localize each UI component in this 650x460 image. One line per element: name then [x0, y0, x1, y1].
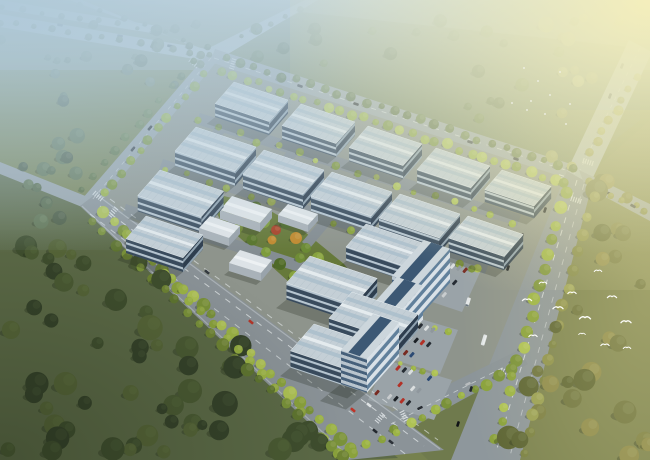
vignette-bottomleft [0, 230, 340, 460]
aerial-render-canvas [0, 0, 650, 460]
atmosphere-haze-layer [0, 0, 650, 460]
warm-wash-right [460, 110, 650, 460]
aerial-rendering-industrial-park [0, 0, 650, 460]
